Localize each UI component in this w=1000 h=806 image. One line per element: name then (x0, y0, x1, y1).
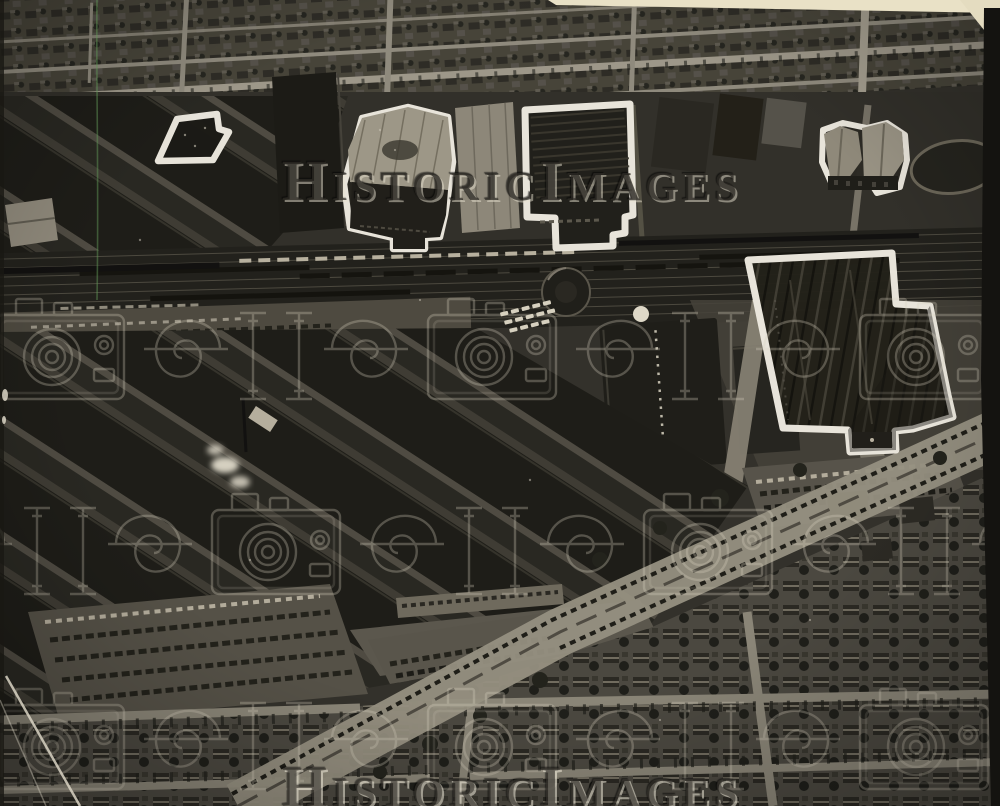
edge-left (0, 0, 4, 806)
aerial-photograph (0, 0, 1000, 806)
vignette (0, 0, 1000, 806)
green-scratch (97, 0, 98, 300)
press-photo: HistoricImages HistoricImages (0, 0, 1000, 806)
